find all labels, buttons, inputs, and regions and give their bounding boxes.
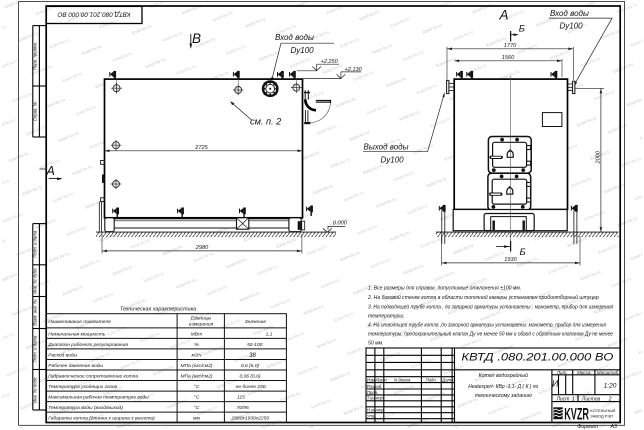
svg-text:не более 250: не более 250	[236, 384, 266, 390]
svg-text:Гидравлическое сопротивление к: Гидравлическое сопротивление котла	[48, 374, 138, 380]
svg-text:Масштаб: Масштаб	[597, 370, 619, 375]
svg-text:температуры, предохранительный: температуры, предохранительный клапан Ду…	[368, 331, 613, 338]
svg-text:+2.130: +2.130	[345, 67, 363, 73]
svg-text:КВТД .080.201.00.000 ВО: КВТД .080.201.00.000 ВО	[461, 352, 613, 364]
svg-text:Б: Б	[520, 247, 526, 258]
svg-text:0.000: 0.000	[333, 221, 348, 227]
svg-text:70/95: 70/95	[236, 405, 249, 411]
svg-text:°С: °С	[194, 405, 200, 411]
svg-text:Подп.: Подп.	[426, 377, 437, 382]
svg-text:Подп. и дата: Подп. и дата	[32, 230, 37, 258]
svg-text:38: 38	[249, 353, 256, 359]
svg-text:Dy100: Dy100	[560, 22, 584, 31]
svg-text:Максимальная рабочая температу: Максимальная рабочая температура воды	[48, 395, 149, 401]
svg-text:м3/ч: м3/ч	[192, 353, 202, 359]
svg-text:1. Все размеры для справок, д: 1. Все размеры для справок, допустимые о…	[368, 286, 521, 292]
svg-text:Н.контр: Н.контр	[367, 408, 385, 413]
svg-text:1,1: 1,1	[266, 332, 273, 338]
svg-text:115: 115	[237, 395, 245, 401]
svg-text:Температура воды (вход/выход): Температура воды (вход/выход)	[48, 405, 123, 411]
svg-text:Дата: Дата	[441, 377, 454, 382]
svg-text:50 мм.: 50 мм.	[368, 341, 383, 347]
svg-text:мм: мм	[193, 417, 200, 422]
svg-text:Взам. инв. №: Взам. инв. №	[32, 299, 37, 326]
svg-text:Значение: Значение	[245, 319, 267, 325]
svg-text:Справ. №: Справ. №	[32, 101, 37, 121]
svg-text:Лист: Лист	[556, 397, 570, 403]
svg-text:1770: 1770	[504, 43, 517, 49]
svg-text:1: 1	[572, 397, 575, 403]
svg-text:Лист: Лист	[375, 377, 387, 382]
svg-text:КОТЕЛЬНЫЙ: КОТЕЛЬНЫЙ	[590, 408, 615, 413]
svg-text:2: 2	[608, 397, 612, 403]
svg-text:Масса: Масса	[577, 370, 591, 375]
svg-text:Котел водогрейный: Котел водогрейный	[479, 372, 528, 379]
svg-text:Вход воды: Вход воды	[275, 33, 314, 42]
svg-text:Температура уходящих газов: Температура уходящих газов	[48, 384, 117, 390]
svg-text:Техническая характеристика: Техническая характеристика	[120, 306, 196, 312]
svg-text:50-100: 50-100	[247, 342, 263, 348]
svg-text:В: В	[192, 31, 201, 46]
svg-text:Листов: Листов	[581, 397, 601, 403]
svg-text:N докум.: N докум.	[394, 377, 411, 382]
svg-text:Утв.: Утв.	[367, 414, 377, 419]
svg-text:Перв. примен.: Перв. примен.	[32, 42, 37, 71]
svg-text:1:20: 1:20	[604, 382, 617, 389]
svg-text:Пров.: Пров.	[367, 390, 378, 395]
svg-text:Подп. и дата: Подп. и дата	[32, 335, 37, 363]
svg-text:Формат: Формат	[577, 424, 598, 430]
svg-text:измерения: измерения	[189, 322, 214, 327]
svg-text:4. На отводящей трубе котла ,: 4. На отводящей трубе котла ,до запорной…	[368, 322, 606, 329]
svg-text:А3: А3	[610, 424, 617, 430]
svg-text:2725: 2725	[194, 145, 208, 151]
svg-text:МПа (кгс/см2): МПа (кгс/см2)	[181, 363, 213, 369]
svg-text:Разраб.: Разраб.	[367, 384, 383, 389]
svg-text:МВт: МВт	[191, 332, 202, 338]
svg-text:°С: °С	[194, 395, 200, 401]
svg-text:ЗАВОД РЭП: ЗАВОД РЭП	[590, 413, 613, 418]
svg-text:см. п. 2: см. п. 2	[250, 117, 281, 127]
svg-text:Инв. № подл.: Инв. № подл.	[32, 376, 37, 403]
svg-text:2980х1930х2250: 2980х1930х2250	[231, 416, 270, 422]
svg-text:температуры.: температуры.	[368, 313, 405, 319]
svg-text:Инв. № дубл.: Инв. № дубл.	[32, 267, 37, 293]
svg-text:KVZR: KVZR	[564, 404, 589, 423]
svg-text:+2.250: +2.250	[321, 59, 339, 65]
svg-text:КВТД.080.201.00.000 ВО: КВТД.080.201.00.000 ВО	[58, 11, 131, 18]
svg-text:2000: 2000	[595, 150, 601, 164]
svg-text:Heatexpert- КВр -1,1- Д ( К ): Heatexpert- КВр -1,1- Д ( К ) по	[468, 384, 538, 390]
svg-text:1560: 1560	[502, 55, 515, 61]
svg-text:техническому заданию: техническому заданию	[475, 393, 532, 399]
svg-text:А: А	[499, 8, 509, 23]
svg-text:Б: Б	[519, 24, 525, 35]
svg-text:Вход воды: Вход воды	[550, 9, 589, 18]
svg-text:Расход воды: Расход воды	[48, 353, 77, 359]
svg-text:Наименование показателя: Наименование показателя	[48, 319, 111, 325]
svg-text:Номинальная мощность: Номинальная мощность	[48, 332, 106, 338]
svg-text:МПа (кгс/см2): МПа (кгс/см2)	[181, 374, 213, 380]
svg-text:И: И	[552, 379, 559, 389]
svg-text:Рабочее давление воды: Рабочее давление воды	[48, 363, 103, 369]
svg-text:0,6 (6,0): 0,6 (6,0)	[241, 363, 260, 369]
svg-text:Диапазон рабочего регулировани: Диапазон рабочего регулирования	[47, 342, 128, 348]
svg-text:Выход воды: Выход воды	[364, 143, 409, 152]
svg-text:%: %	[194, 342, 199, 348]
svg-text:А: А	[46, 164, 55, 178]
svg-text:Dy100: Dy100	[291, 46, 315, 55]
svg-text:2980: 2980	[195, 245, 209, 251]
svg-text:0,06 (0,6): 0,06 (0,6)	[240, 374, 261, 380]
svg-text:°С: °С	[194, 384, 200, 390]
svg-text:Т.контр: Т.контр	[367, 396, 384, 401]
svg-text:Dy100: Dy100	[381, 156, 405, 165]
svg-text:Изм: Изм	[367, 377, 375, 382]
svg-text:Лит.: Лит.	[556, 370, 568, 375]
svg-text:3. На подводящей трубе котла: 3. На подводящей трубе котла , до запорн…	[368, 304, 613, 311]
svg-text:Габариты котла (длинна х ширин: Габариты котла (длинна х ширина х высота…	[48, 416, 155, 422]
svg-text:1930: 1930	[504, 257, 517, 263]
svg-text:2. На боковой стенке котла в: 2. На боковой стенке котла в области топ…	[367, 294, 599, 301]
svg-text:Единицы: Единицы	[191, 315, 212, 321]
